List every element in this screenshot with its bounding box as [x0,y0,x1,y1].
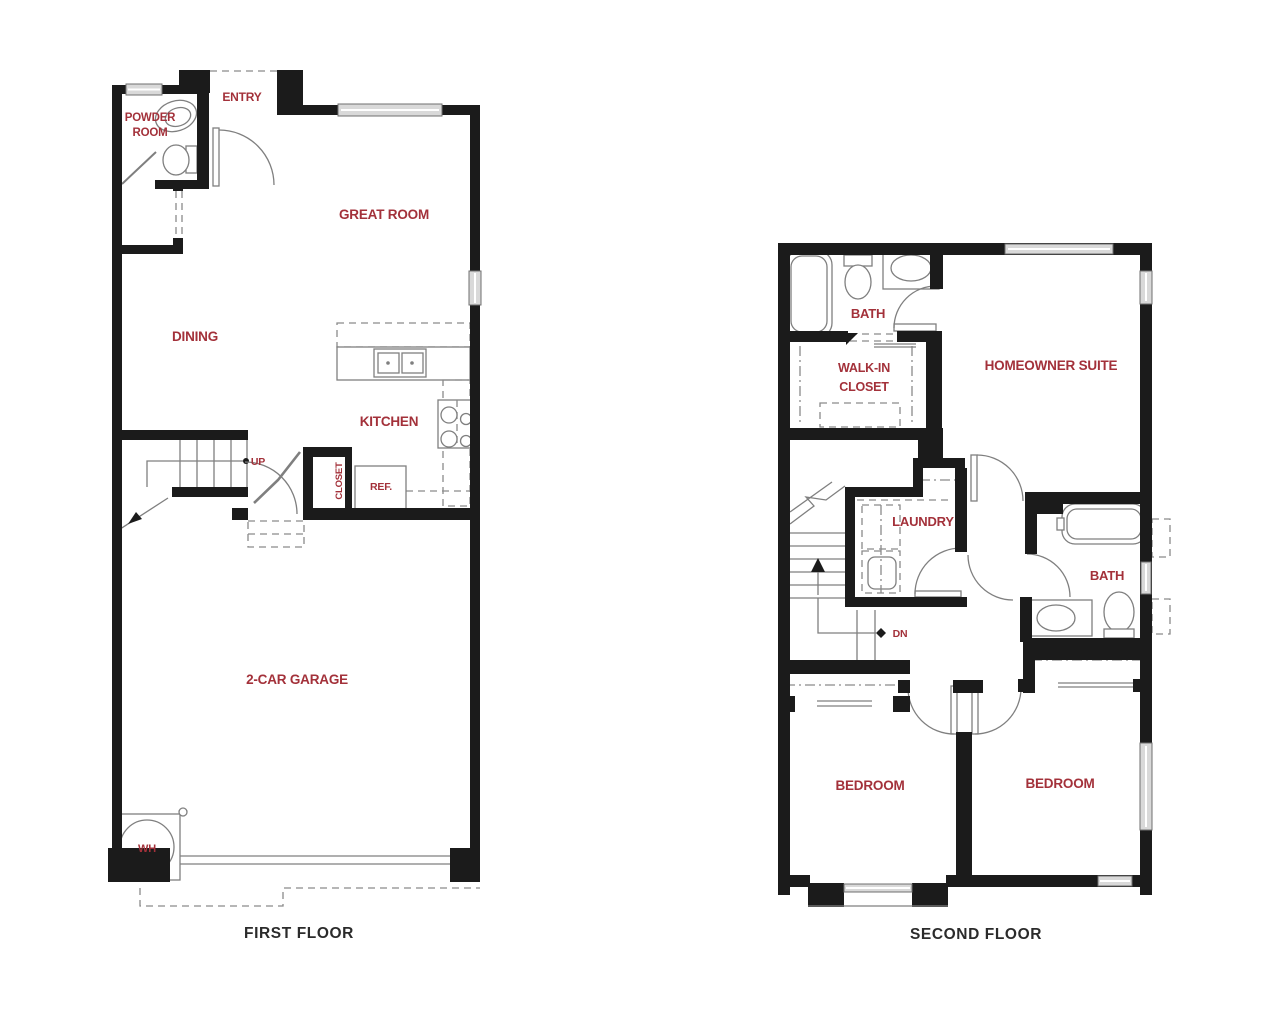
ff-powder-toilet [163,145,197,175]
ff-stove [438,400,475,448]
ff-label-closet: CLOSET [334,462,345,500]
sf-label-bath-hall: BATH [1090,568,1124,583]
ff-stairs [114,440,249,533]
ff-label-up: UP [251,456,265,468]
sf-suite-door [971,455,1023,501]
sf-label-walkin-line2: CLOSET [839,380,889,394]
second-floor-plan: BATH WALK-IN CLOSET HOMEOWNER SUITE LAUN… [778,243,1170,943]
sf-label-dn: DN [893,628,908,640]
sf-bath2-door [1027,554,1070,597]
sf-optional-features [1152,519,1170,634]
sf-bath1-toilet [844,255,872,299]
ff-label-great-room: GREAT ROOM [339,207,429,222]
ff-garage-door [140,856,480,906]
ff-entry-door [213,128,274,186]
sf-bath2-tub [1057,504,1146,544]
sf-label-bath-upper: BATH [851,306,885,321]
floorplan-page: POWDER ROOM ENTRY GREAT ROOM DINING KITC… [0,0,1280,1013]
ff-walls [108,70,480,882]
sf-label-bedroom-left: BEDROOM [835,778,904,793]
sf-bath2-sink [1028,600,1092,636]
ff-label-dining: DINING [172,329,218,344]
ff-label-powder-line2: ROOM [133,127,168,139]
ff-label-ref: REF. [370,481,392,493]
ff-coat-nook-opening [176,191,182,238]
ff-label-powder-line1: POWDER [125,112,176,124]
sf-label-walkin-line1: WALK-IN [838,361,890,375]
ff-label-entry: ENTRY [222,90,261,104]
ff-powder-door [122,152,156,184]
sf-bedroom-doors [908,686,1021,734]
sf-label-laundry: LAUNDRY [892,514,954,529]
sf-bath1-tub [786,251,832,337]
floorplan-drawing: POWDER ROOM ENTRY GREAT ROOM DINING KITC… [0,0,1280,1013]
sf-bath1-door [894,286,936,331]
sf-bath2-toilet [1104,592,1134,638]
sf-label-homeowner-suite: HOMEOWNER SUITE [985,358,1118,373]
sf-label-bedroom-right: BEDROOM [1025,776,1094,791]
ff-caption: FIRST FLOOR [244,925,354,942]
sf-caption: SECOND FLOOR [910,926,1042,943]
sf-laundry-door [915,548,961,597]
first-floor-plan: POWDER ROOM ENTRY GREAT ROOM DINING KITC… [108,70,481,942]
ff-label-kitchen: KITCHEN [360,414,419,429]
ff-label-garage: 2-CAR GARAGE [246,672,348,687]
ff-label-wh: WH [138,843,156,855]
sf-hall-door [968,555,1013,600]
